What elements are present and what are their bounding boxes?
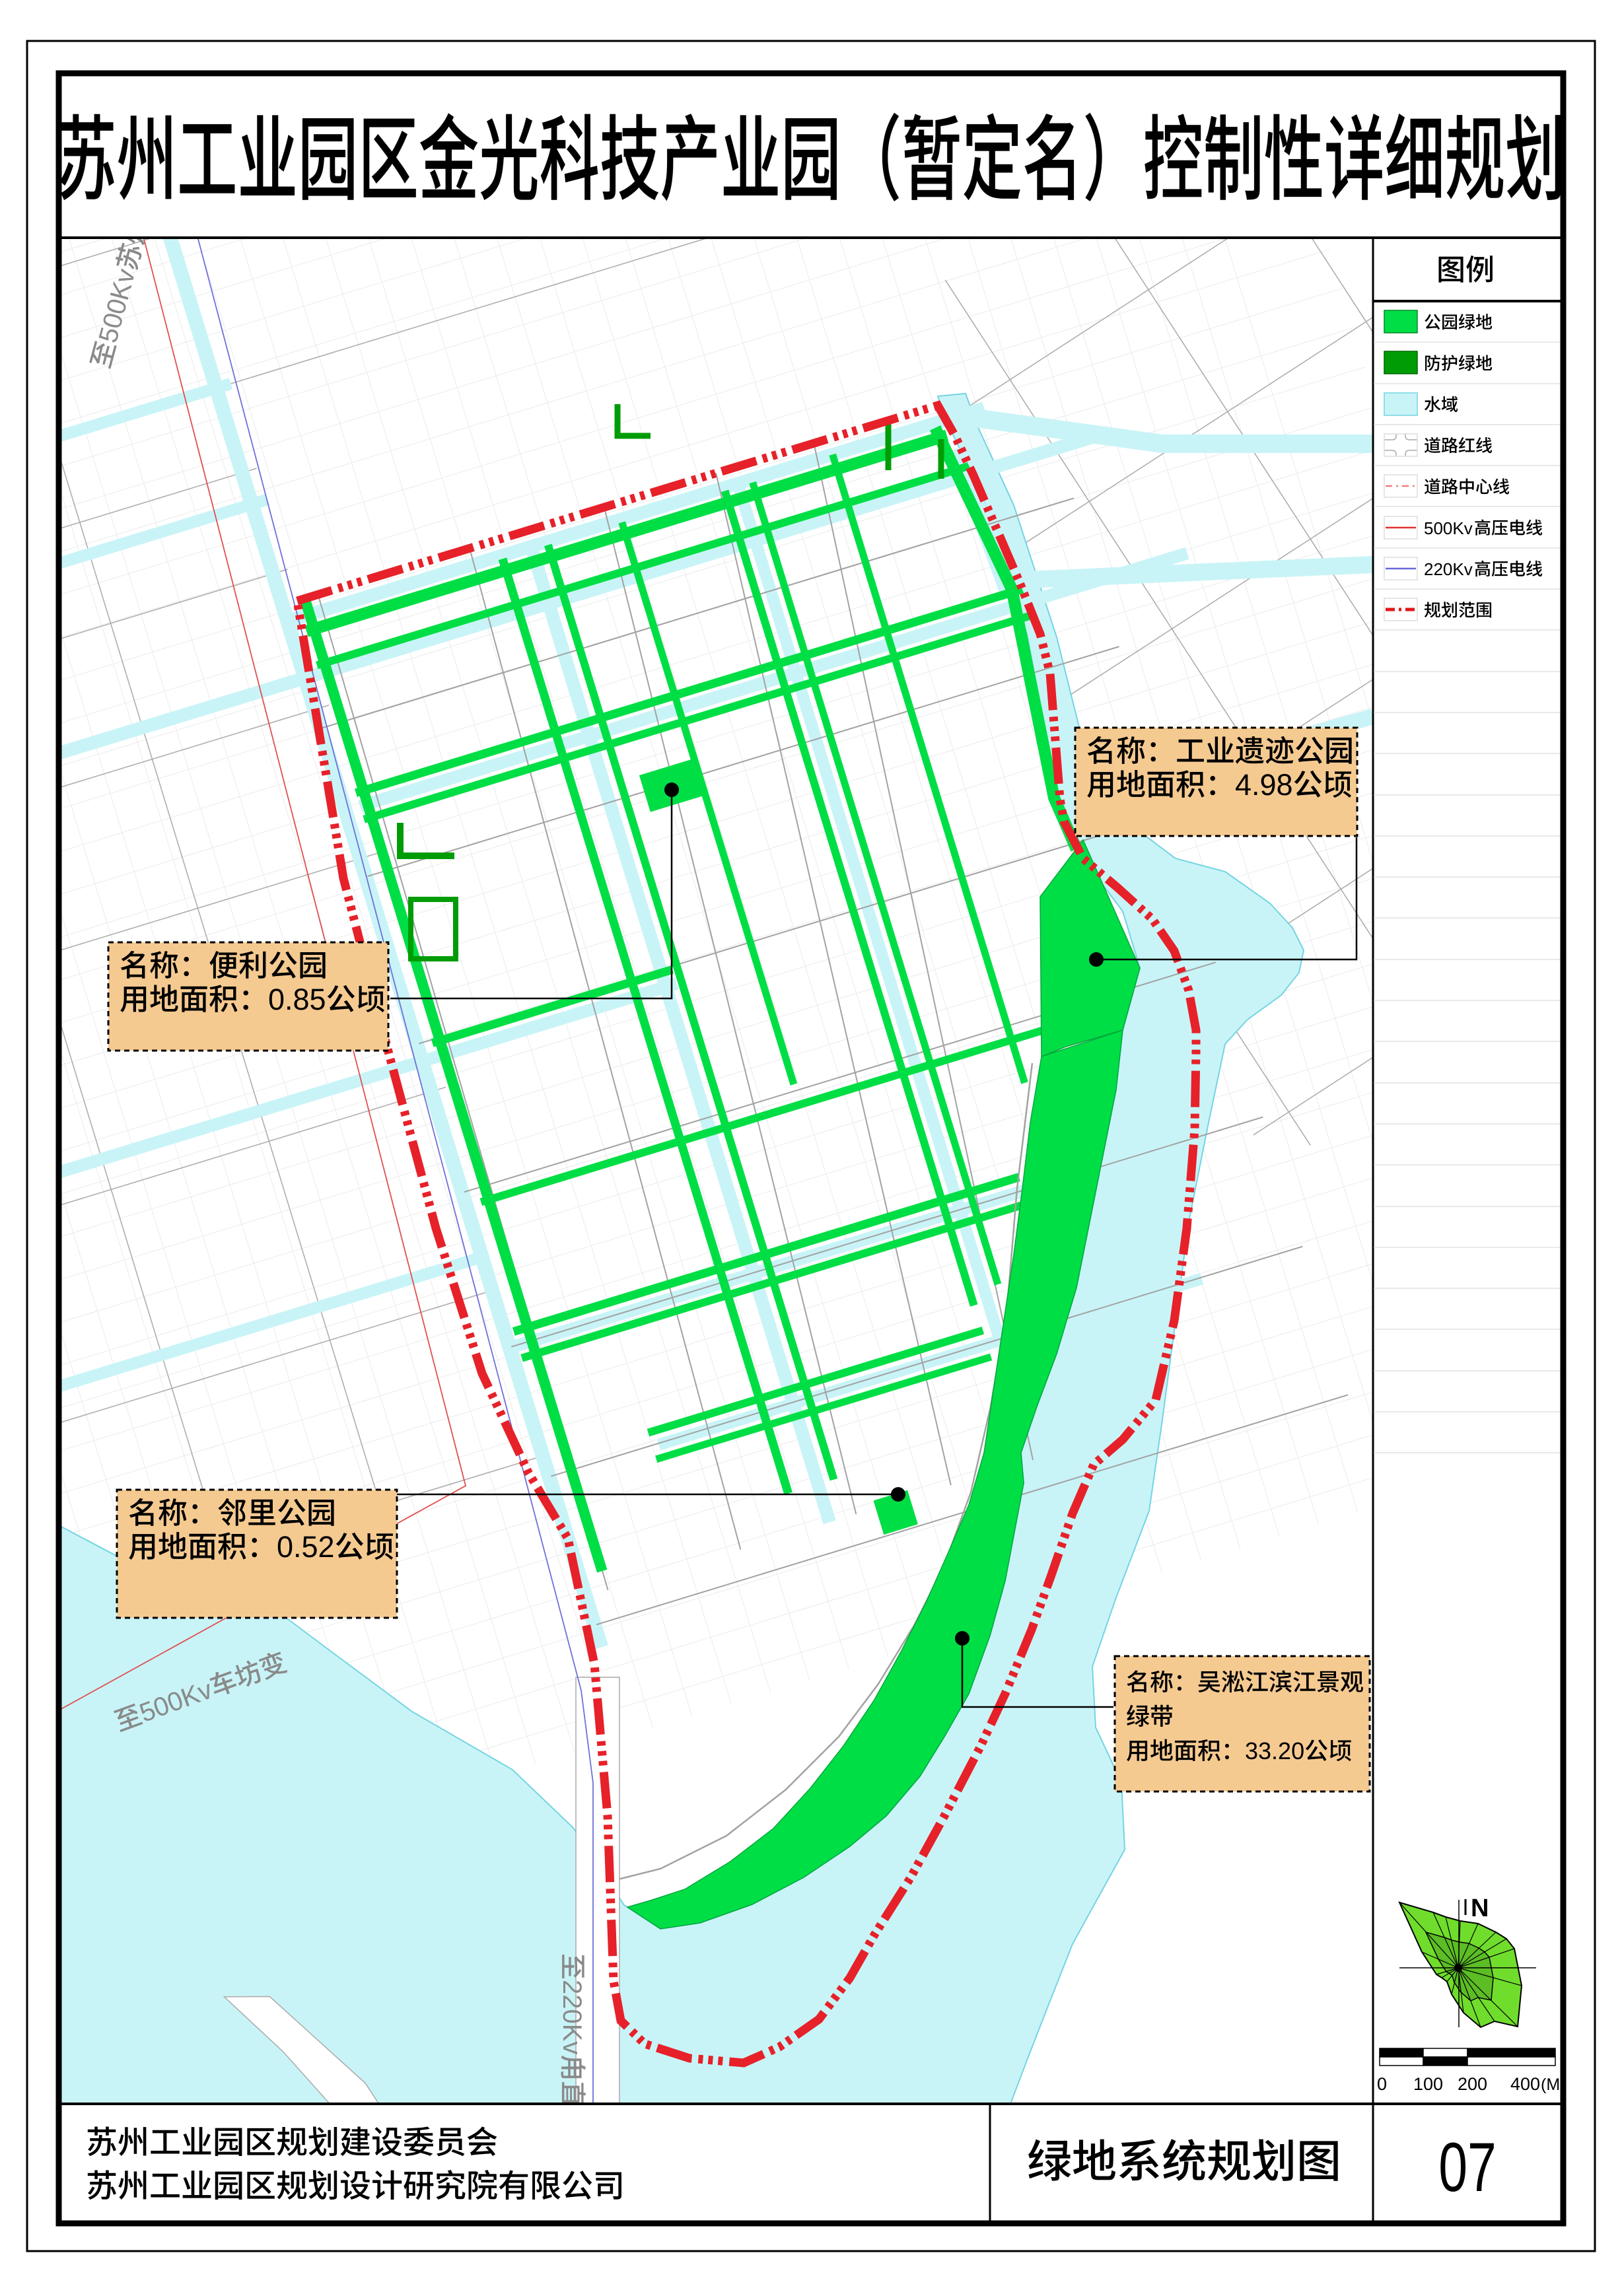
svg-text:0: 0 [1377, 2074, 1387, 2094]
svg-text:N: N [1471, 1895, 1489, 1922]
svg-text:0: 0 [557, 2009, 586, 2024]
svg-text:200: 200 [1458, 2074, 1487, 2094]
svg-text:v: v [557, 2041, 586, 2054]
svg-text:0.85: 0.85 [268, 983, 326, 1016]
svg-text:100: 100 [1413, 2074, 1443, 2094]
svg-text:4.98: 4.98 [1235, 768, 1293, 802]
svg-text:K: K [557, 2024, 586, 2042]
svg-text:500Kv: 500Kv [1424, 518, 1473, 538]
svg-text:2: 2 [557, 1980, 586, 1994]
svg-text:0.52: 0.52 [277, 1530, 335, 1564]
svg-text:220Kv: 220Kv [1424, 559, 1473, 579]
svg-text:2: 2 [557, 1994, 586, 2009]
svg-text:07: 07 [1438, 2128, 1497, 2206]
svg-text:33.20: 33.20 [1245, 1737, 1304, 1764]
svg-text:400: 400 [1510, 2074, 1540, 2094]
